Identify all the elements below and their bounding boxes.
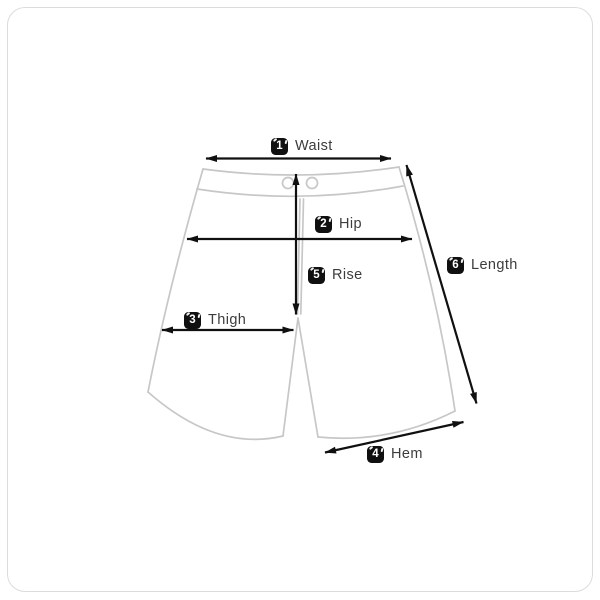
measurement-label-text-rise: Rise (332, 267, 363, 284)
measurement-label-rise: 5 Rise (308, 267, 363, 284)
waistband-top-edge (203, 167, 399, 175)
right-leg-hem (318, 411, 455, 438)
measurement-number-badge-waist: 1 (271, 138, 288, 155)
measurement-number-badge-hem: 4 (367, 446, 384, 463)
waistband-bottom-edge (197, 186, 403, 196)
measurement-label-text-hip: Hip (339, 216, 362, 233)
shorts-size-diagram (0, 0, 600, 600)
left-outer-seam (148, 169, 203, 392)
measurement-label-hip: 2 Hip (315, 216, 362, 233)
grommet-left (283, 178, 294, 189)
measurement-label-thigh: 3 Thigh (184, 312, 246, 329)
measurement-label-length: 6 Length (447, 257, 518, 274)
measurement-label-hem: 4 Hem (367, 446, 423, 463)
length-arrow (407, 165, 477, 404)
measurement-label-text-waist: Waist (295, 138, 333, 155)
measurement-number-badge-rise: 5 (308, 267, 325, 284)
shorts-outline (148, 167, 455, 439)
measurement-number-badge-hip: 2 (315, 216, 332, 233)
left-leg-hem (148, 392, 283, 439)
measurement-arrows (162, 159, 477, 453)
measurement-label-text-thigh: Thigh (208, 312, 246, 329)
measurement-number-badge-length: 6 (447, 257, 464, 274)
right-outer-seam (399, 167, 455, 411)
measurement-label-text-length: Length (471, 257, 518, 274)
measurement-label-text-hem: Hem (391, 446, 423, 463)
inseam (283, 318, 318, 437)
measurement-label-waist: 1 Waist (271, 138, 333, 155)
measurement-number-badge-thigh: 3 (184, 312, 201, 329)
fly-seam (298, 199, 304, 314)
grommet-right (307, 178, 318, 189)
